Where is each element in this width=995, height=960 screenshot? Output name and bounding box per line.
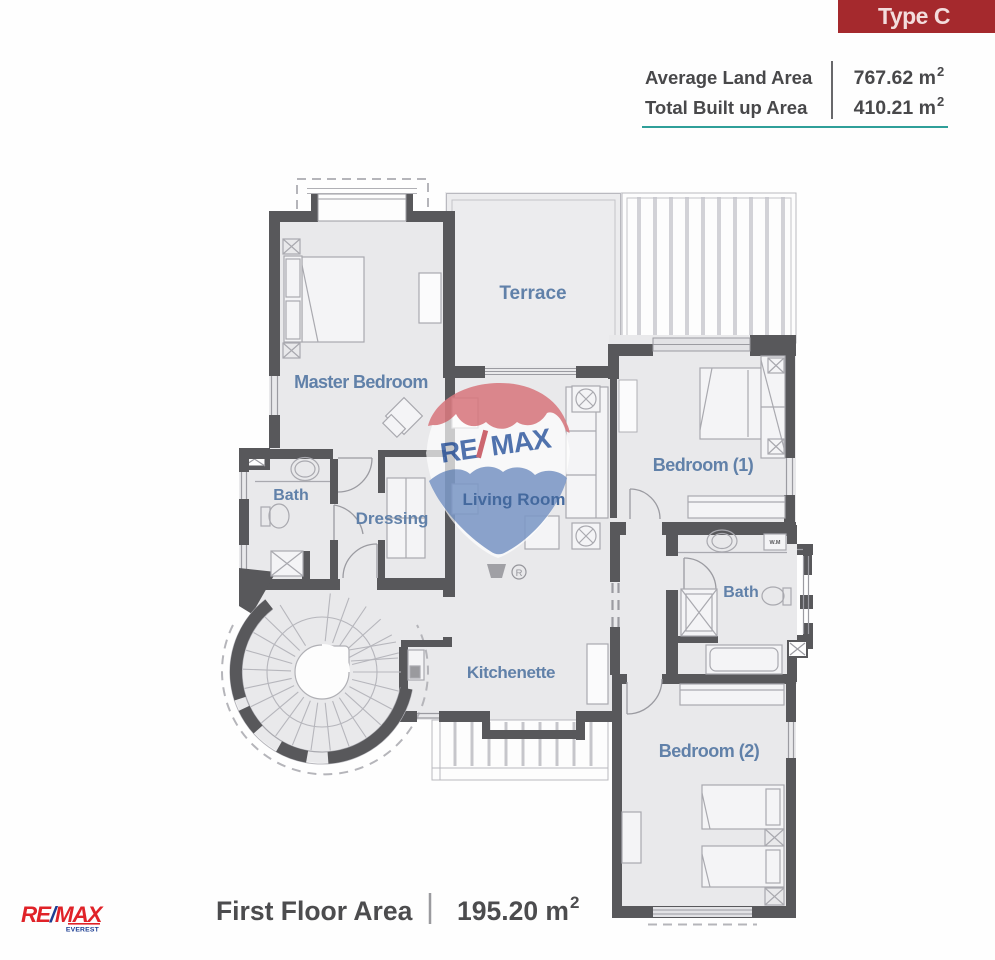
svg-text:R: R — [516, 568, 523, 579]
svg-text:Average Land Area: Average Land Area — [645, 67, 813, 88]
svg-text:Living Room: Living Room — [463, 490, 566, 509]
svg-text:EVEREST: EVEREST — [66, 927, 100, 934]
svg-text:First Floor Area: First Floor Area — [216, 896, 413, 926]
svg-text:Terrace: Terrace — [499, 283, 566, 304]
svg-text:2: 2 — [937, 94, 944, 109]
svg-text:2: 2 — [937, 64, 944, 79]
svg-text:767.62 m: 767.62 m — [854, 67, 936, 89]
svg-text:410.21 m: 410.21 m — [854, 97, 936, 119]
svg-text:Bedroom (2): Bedroom (2) — [659, 741, 760, 761]
svg-text:Type C: Type C — [878, 3, 950, 29]
svg-text:Total Built up Area: Total Built up Area — [645, 97, 808, 118]
svg-text:W.M: W.M — [770, 540, 781, 546]
svg-text:Bath: Bath — [273, 487, 309, 504]
svg-text:2: 2 — [570, 893, 579, 912]
svg-text:Bedroom (1): Bedroom (1) — [653, 455, 754, 475]
svg-text:Master Bedroom: Master Bedroom — [294, 372, 428, 392]
svg-text:Bath: Bath — [723, 584, 759, 601]
svg-text:RE: RE — [438, 433, 479, 469]
svg-text:195.20 m: 195.20 m — [457, 896, 569, 926]
svg-text:Dressing: Dressing — [356, 509, 429, 528]
svg-text:Kitchenette: Kitchenette — [467, 663, 555, 682]
